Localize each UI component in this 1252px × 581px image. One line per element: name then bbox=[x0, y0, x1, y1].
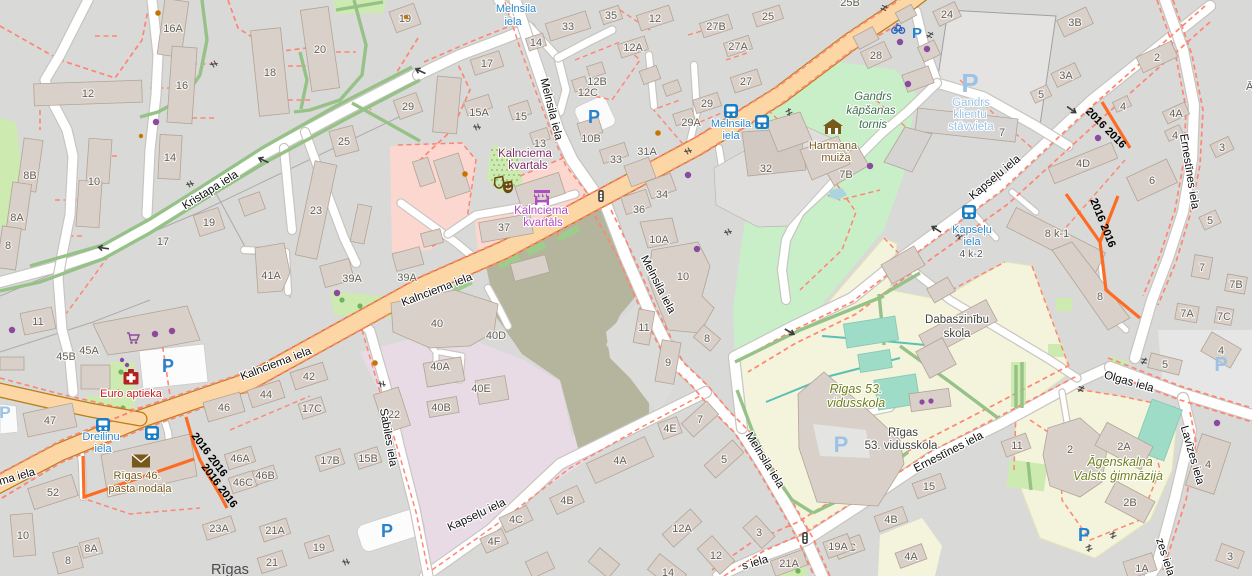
svg-text:11: 11 bbox=[1011, 440, 1022, 452]
svg-text:27: 27 bbox=[740, 76, 752, 88]
svg-text:4F: 4F bbox=[488, 536, 501, 548]
svg-text:35: 35 bbox=[605, 10, 617, 22]
svg-text:4A: 4A bbox=[904, 551, 918, 563]
svg-text:8: 8 bbox=[65, 555, 71, 567]
svg-text:20: 20 bbox=[314, 44, 326, 56]
svg-text:kvartals: kvartals bbox=[508, 160, 548, 172]
svg-text:17: 17 bbox=[481, 58, 493, 70]
svg-text:P: P bbox=[162, 356, 174, 376]
svg-text:25: 25 bbox=[762, 11, 774, 23]
svg-text:iela: iela bbox=[963, 236, 981, 248]
svg-text:10A: 10A bbox=[649, 234, 669, 246]
svg-text:17C: 17C bbox=[302, 403, 322, 415]
svg-text:Kalnciema: Kalnciema bbox=[514, 205, 568, 217]
svg-text:12: 12 bbox=[649, 13, 661, 25]
svg-text:19: 19 bbox=[399, 13, 411, 25]
svg-text:29: 29 bbox=[701, 98, 713, 110]
svg-text:5: 5 bbox=[1038, 89, 1044, 101]
svg-text:8: 8 bbox=[1097, 291, 1103, 303]
svg-text:tornis: tornis bbox=[859, 119, 887, 131]
svg-text:12: 12 bbox=[710, 550, 722, 562]
svg-text:14: 14 bbox=[164, 152, 176, 164]
svg-text:7: 7 bbox=[1199, 262, 1205, 274]
svg-text:36: 36 bbox=[633, 204, 645, 216]
svg-text:4A: 4A bbox=[1169, 108, 1183, 120]
svg-text:pasta nodaļa: pasta nodaļa bbox=[109, 483, 173, 495]
svg-text:12A: 12A bbox=[672, 523, 692, 535]
svg-text:stāvvieta: stāvvieta bbox=[948, 121, 994, 133]
svg-text:7B: 7B bbox=[839, 169, 852, 181]
svg-text:3B: 3B bbox=[1068, 17, 1081, 29]
svg-text:40D: 40D bbox=[486, 330, 506, 342]
svg-text:44: 44 bbox=[260, 389, 272, 401]
svg-text:Melnsila: Melnsila bbox=[711, 118, 752, 130]
svg-text:4A: 4A bbox=[613, 455, 627, 467]
svg-text:19: 19 bbox=[313, 542, 325, 554]
svg-text:46B: 46B bbox=[255, 470, 275, 482]
svg-text:34: 34 bbox=[656, 189, 668, 201]
svg-text:24: 24 bbox=[941, 9, 953, 21]
svg-text:12C: 12C bbox=[578, 87, 598, 99]
svg-text:53. vidusskola: 53. vidusskola bbox=[865, 440, 938, 452]
svg-text:iela: iela bbox=[722, 130, 740, 142]
svg-text:19A: 19A bbox=[828, 541, 848, 553]
svg-text:21: 21 bbox=[266, 557, 278, 569]
svg-text:23: 23 bbox=[310, 205, 322, 217]
svg-text:28: 28 bbox=[870, 50, 882, 62]
svg-text:27B: 27B bbox=[706, 21, 726, 33]
svg-text:32: 32 bbox=[760, 163, 772, 175]
svg-text:kāpšanas: kāpšanas bbox=[846, 105, 895, 117]
svg-text:8 k-1: 8 k-1 bbox=[1045, 228, 1069, 240]
svg-text:10: 10 bbox=[88, 176, 100, 188]
svg-text:3: 3 bbox=[756, 527, 762, 539]
svg-text:2: 2 bbox=[1067, 444, 1073, 456]
svg-text:P: P bbox=[961, 68, 978, 98]
svg-text:Rīgas 53.: Rīgas 53. bbox=[830, 382, 883, 396]
svg-text:8: 8 bbox=[5, 240, 11, 252]
svg-text:Gandrs: Gandrs bbox=[952, 97, 990, 109]
svg-text:14: 14 bbox=[530, 37, 542, 49]
svg-text:Valsts ģimnāzija: Valsts ģimnāzija bbox=[1073, 469, 1163, 483]
svg-text:10B: 10B bbox=[581, 133, 601, 145]
svg-text:41A: 41A bbox=[261, 270, 281, 282]
svg-text:40: 40 bbox=[431, 318, 443, 330]
svg-text:46A: 46A bbox=[230, 453, 250, 465]
svg-text:P: P bbox=[588, 107, 600, 127]
svg-text:muiža: muiža bbox=[821, 152, 851, 164]
svg-text:11: 11 bbox=[638, 322, 649, 334]
svg-text:4C: 4C bbox=[509, 514, 523, 526]
svg-text:Hartmaņa: Hartmaņa bbox=[809, 140, 858, 152]
svg-text:7C: 7C bbox=[1217, 311, 1231, 323]
svg-text:P: P bbox=[381, 521, 393, 541]
svg-text:Āgenskalna: Āgenskalna bbox=[1086, 455, 1152, 469]
svg-text:4B: 4B bbox=[884, 514, 897, 526]
svg-text:5: 5 bbox=[1162, 359, 1168, 371]
svg-text:10: 10 bbox=[677, 271, 689, 283]
svg-text:12A: 12A bbox=[623, 42, 643, 54]
svg-text:2: 2 bbox=[1154, 52, 1160, 64]
svg-text:29: 29 bbox=[402, 101, 414, 113]
svg-text:Kapseļu: Kapseļu bbox=[952, 224, 992, 236]
svg-text:P: P bbox=[834, 432, 849, 457]
svg-text:25B: 25B bbox=[840, 0, 860, 9]
svg-text:40B: 40B bbox=[431, 402, 451, 414]
svg-text:2A: 2A bbox=[1117, 441, 1131, 453]
svg-text:15: 15 bbox=[923, 481, 935, 493]
svg-text:45A: 45A bbox=[79, 345, 99, 357]
svg-text:52: 52 bbox=[47, 487, 59, 499]
svg-text:Dabaszinību: Dabaszinību bbox=[925, 314, 989, 326]
svg-text:11: 11 bbox=[32, 316, 43, 328]
svg-text:7: 7 bbox=[999, 127, 1005, 139]
svg-text:Āg: Āg bbox=[1246, 81, 1252, 93]
svg-text:Melnsila: Melnsila bbox=[496, 3, 537, 15]
svg-text:18: 18 bbox=[264, 67, 276, 79]
svg-text:5: 5 bbox=[721, 454, 727, 466]
svg-text:19: 19 bbox=[203, 217, 215, 229]
svg-text:37: 37 bbox=[498, 222, 510, 234]
svg-text:klientu: klientu bbox=[953, 109, 986, 121]
svg-text:1A: 1A bbox=[1135, 563, 1149, 575]
svg-text:skola: skola bbox=[944, 328, 971, 340]
svg-text:2B: 2B bbox=[1123, 497, 1136, 509]
svg-text:Gandrs: Gandrs bbox=[854, 91, 892, 103]
svg-text:3: 3 bbox=[1219, 142, 1225, 154]
svg-text:15A: 15A bbox=[469, 107, 489, 119]
svg-text:17B: 17B bbox=[320, 455, 340, 467]
svg-text:Rīgas: Rīgas bbox=[888, 427, 918, 439]
svg-text:40A: 40A bbox=[430, 361, 450, 373]
svg-text:39A: 39A bbox=[342, 273, 362, 285]
svg-text:33: 33 bbox=[610, 154, 622, 166]
svg-text:kvartāls: kvartāls bbox=[523, 217, 563, 229]
svg-text:4E: 4E bbox=[663, 423, 676, 435]
svg-text:4D: 4D bbox=[1076, 158, 1090, 170]
svg-text:P: P bbox=[0, 403, 11, 422]
svg-text:Dreilinu: Dreilinu bbox=[82, 431, 119, 443]
svg-text:21A: 21A bbox=[265, 525, 285, 537]
svg-text:16A: 16A bbox=[163, 23, 183, 35]
svg-text:4: 4 bbox=[1120, 101, 1126, 113]
svg-text:23A: 23A bbox=[209, 523, 229, 535]
svg-text:46C: 46C bbox=[233, 477, 253, 489]
svg-text:Kalnciema: Kalnciema bbox=[498, 148, 552, 160]
svg-text:3: 3 bbox=[1227, 551, 1233, 563]
svg-text:4 k-2: 4 k-2 bbox=[959, 248, 983, 260]
svg-text:12: 12 bbox=[82, 88, 94, 100]
svg-text:4: 4 bbox=[1205, 459, 1211, 471]
svg-text:vidusskola: vidusskola bbox=[827, 396, 885, 410]
svg-text:10: 10 bbox=[17, 530, 29, 542]
svg-text:4: 4 bbox=[1172, 130, 1178, 142]
svg-text:14: 14 bbox=[662, 567, 674, 576]
svg-text:P: P bbox=[1214, 354, 1227, 376]
svg-text:8: 8 bbox=[704, 333, 710, 345]
svg-text:3A: 3A bbox=[1059, 70, 1073, 82]
svg-text:15: 15 bbox=[515, 111, 527, 123]
svg-text:8A: 8A bbox=[84, 543, 98, 555]
svg-text:Rīgas 46.: Rīgas 46. bbox=[113, 470, 160, 482]
svg-text:27A: 27A bbox=[728, 41, 748, 53]
svg-text:P: P bbox=[912, 25, 922, 42]
svg-text:Euro aptieka: Euro aptieka bbox=[100, 388, 163, 400]
svg-text:47: 47 bbox=[44, 415, 56, 427]
svg-text:31A: 31A bbox=[637, 146, 657, 158]
svg-text:8B: 8B bbox=[23, 170, 36, 182]
svg-text:9: 9 bbox=[665, 357, 671, 369]
svg-text:5: 5 bbox=[1207, 215, 1213, 227]
svg-text:15B: 15B bbox=[358, 453, 378, 465]
svg-text:40E: 40E bbox=[471, 383, 491, 395]
svg-text:21A: 21A bbox=[779, 558, 799, 570]
svg-text:iela: iela bbox=[94, 443, 112, 455]
svg-text:8A: 8A bbox=[10, 212, 24, 224]
svg-text:Rīgas: Rīgas bbox=[211, 562, 249, 576]
svg-text:17: 17 bbox=[157, 236, 169, 248]
svg-text:7A: 7A bbox=[1180, 308, 1194, 320]
svg-text:7B: 7B bbox=[1229, 279, 1242, 291]
svg-text:42: 42 bbox=[303, 371, 315, 383]
svg-text:29A: 29A bbox=[681, 117, 701, 129]
svg-text:25: 25 bbox=[338, 136, 350, 148]
svg-text:iela: iela bbox=[504, 16, 522, 28]
svg-text:4B: 4B bbox=[560, 495, 573, 507]
svg-text:P: P bbox=[1078, 525, 1090, 545]
svg-text:39A: 39A bbox=[397, 272, 417, 284]
svg-text:46: 46 bbox=[218, 402, 230, 414]
svg-text:16: 16 bbox=[176, 80, 188, 92]
svg-text:33: 33 bbox=[562, 21, 574, 33]
svg-text:7: 7 bbox=[697, 414, 703, 426]
svg-text:45B: 45B bbox=[56, 351, 76, 363]
svg-text:6: 6 bbox=[1149, 175, 1155, 187]
